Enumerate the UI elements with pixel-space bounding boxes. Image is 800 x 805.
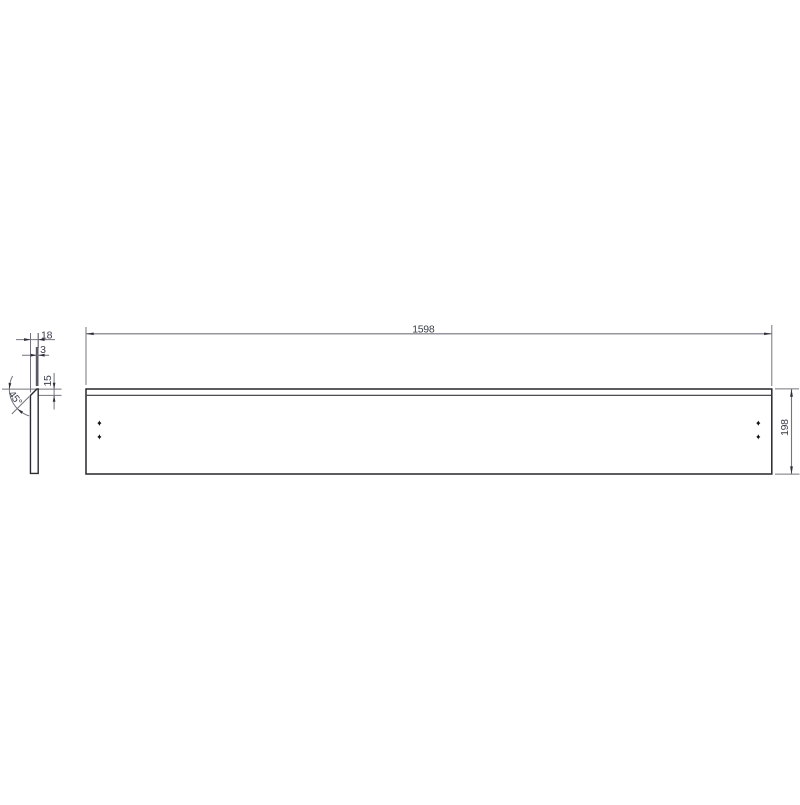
svg-text:198: 198 [779,419,791,436]
svg-text:15: 15 [42,375,54,387]
svg-text:18: 18 [41,330,53,342]
svg-text:1598: 1598 [412,323,435,335]
svg-text:3: 3 [40,344,46,356]
